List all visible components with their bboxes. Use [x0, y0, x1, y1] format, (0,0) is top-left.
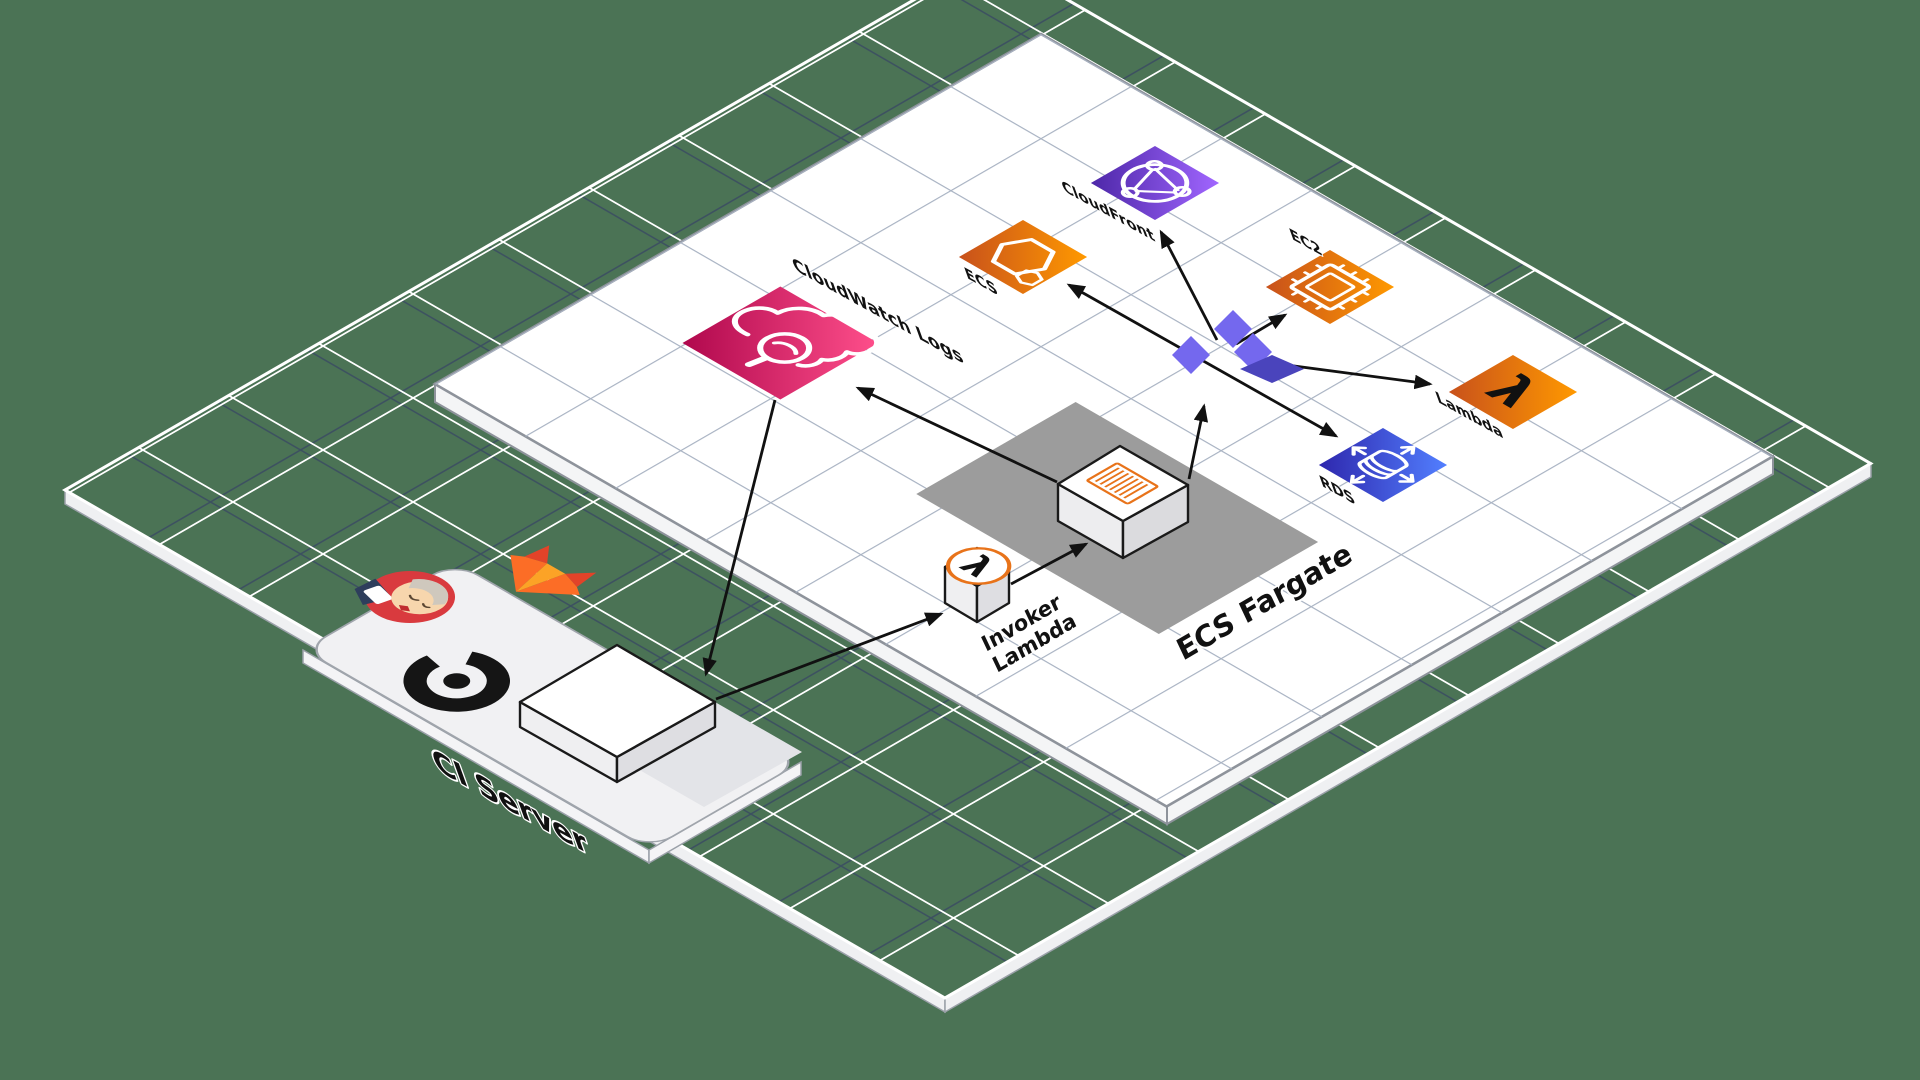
isometric-architecture-diagram: λ — [0, 0, 1920, 1080]
